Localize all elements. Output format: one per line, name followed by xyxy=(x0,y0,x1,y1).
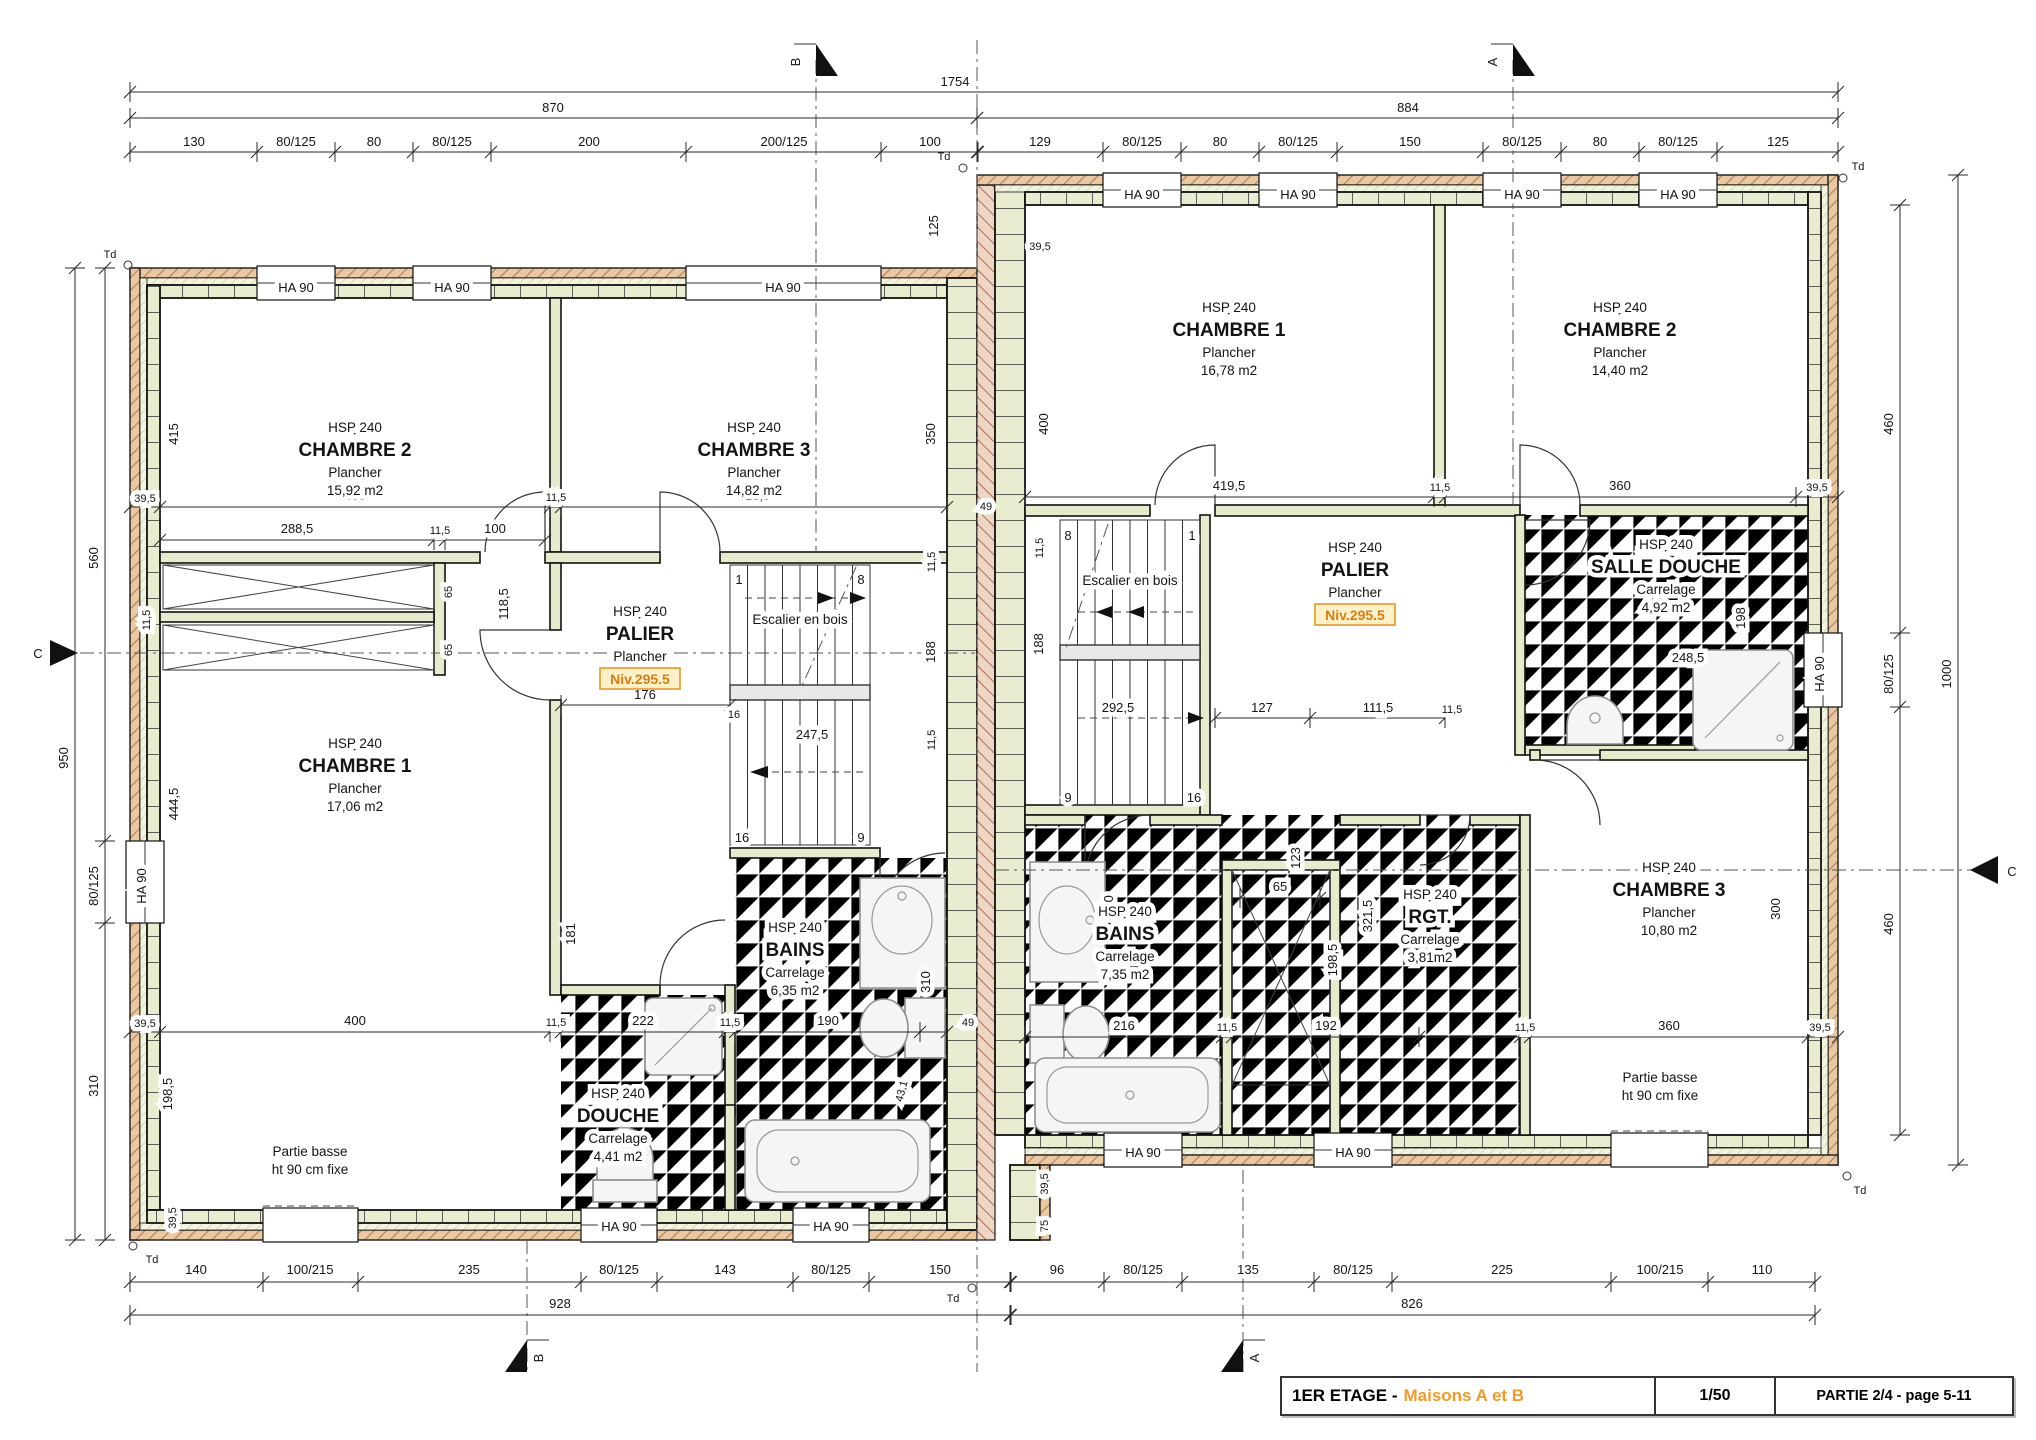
stair-number: 1 xyxy=(1188,528,1195,543)
room-hsp: HSP 240 xyxy=(1098,904,1152,919)
stair-number: 16 xyxy=(1187,790,1201,805)
dim-label: 123 xyxy=(1288,847,1303,869)
section-b-bottom: B xyxy=(531,1354,546,1363)
td-marker: Td xyxy=(938,151,951,163)
td-marker: Td xyxy=(1854,1185,1867,1197)
room-area: 7,35 m2 xyxy=(1101,967,1150,982)
dim-label: 350 xyxy=(923,423,938,445)
stairs-label: Escalier en bois xyxy=(1082,573,1178,588)
dim-label: 198,5 xyxy=(1325,944,1340,977)
room-hsp: HSP 240 xyxy=(768,920,822,935)
room-area: 3,81m2 xyxy=(1407,950,1452,965)
dim-label: 11,5 xyxy=(926,730,938,751)
dim-label: 80/125 xyxy=(1881,654,1896,694)
room-title: CHAMBRE 1 xyxy=(1173,320,1286,341)
dim-label: 216 xyxy=(1113,1018,1135,1033)
window-label: HA 90 xyxy=(1812,656,1827,691)
drawing-title: 1ER ETAGE - Maisons A et B xyxy=(1282,1378,1656,1414)
stair-number: 9 xyxy=(857,830,864,845)
dim-label: 928 xyxy=(549,1296,571,1311)
room-hsp: HSP 240 xyxy=(1593,300,1647,315)
dim-label: 826 xyxy=(1401,1296,1423,1311)
section-a-top: A xyxy=(1485,57,1500,66)
dim-label: 80 xyxy=(1213,134,1227,149)
window-label: HA 90 xyxy=(434,280,469,295)
dim-label: 1754 xyxy=(941,74,970,89)
dim-label: 444,5 xyxy=(166,788,181,821)
dim-label: 190 xyxy=(817,1013,839,1028)
room-title: BAINS xyxy=(1095,924,1154,945)
room-area: 15,92 m2 xyxy=(327,483,383,498)
dim-label: 49 xyxy=(962,1017,974,1029)
dim-label: 150 xyxy=(929,1262,951,1277)
section-b-top: B xyxy=(788,58,803,67)
dim-label: 11,5 xyxy=(1430,482,1451,494)
dim-label: 39,5 xyxy=(167,1207,179,1228)
dim-label: 288,5 xyxy=(281,521,314,536)
dim-label: 143 xyxy=(714,1262,736,1277)
dim-label: 292,5 xyxy=(1102,700,1135,715)
section-c-right: C xyxy=(2007,864,2016,879)
dim-label: 321,5 xyxy=(1360,900,1375,933)
dim-label: 125 xyxy=(1767,134,1789,149)
stairs-label: Escalier en bois xyxy=(752,612,848,627)
room-sub: Plancher xyxy=(328,465,382,480)
dim-label: 460 xyxy=(1881,913,1896,935)
room-hsp: HSP 240 xyxy=(1403,887,1457,902)
dim-label: 300 xyxy=(1768,898,1783,920)
dim-label: 11,5 xyxy=(926,552,938,573)
dim-label: 65 xyxy=(443,644,455,656)
dim-label: 248,5 xyxy=(1672,650,1705,665)
drawing-scale: 1/50 xyxy=(1656,1378,1776,1414)
room-area: 14,40 m2 xyxy=(1592,363,1648,378)
td-marker: Td xyxy=(146,1254,159,1266)
room-hsp: HSP 240 xyxy=(328,736,382,751)
dim-label: 125 xyxy=(926,215,941,237)
room-sub: Carrelage xyxy=(765,965,824,980)
dim-label: 100 xyxy=(919,134,941,149)
dim-label: 235 xyxy=(458,1262,480,1277)
room-sub: Plancher xyxy=(727,465,781,480)
window-label: HA 90 xyxy=(134,868,149,903)
section-a-bottom: A xyxy=(1247,1353,1262,1362)
dim-label: 200/125 xyxy=(761,134,808,149)
td-marker: Td xyxy=(947,1293,960,1305)
dim-label: 49 xyxy=(980,501,992,513)
room-sub: Carrelage xyxy=(1636,582,1695,597)
note-partie-basse: ht 90 cm fixe xyxy=(1622,1088,1699,1103)
dim-label: 11,5 xyxy=(1442,704,1463,716)
dim-label: 11,5 xyxy=(1217,1022,1238,1034)
room-title: BAINS xyxy=(765,940,824,961)
dim-label: 400 xyxy=(344,1013,366,1028)
stair-number: 8 xyxy=(857,572,864,587)
dim-label: 80/125 xyxy=(1122,134,1162,149)
window-label: HA 90 xyxy=(1504,187,1539,202)
dim-label: 460 xyxy=(1881,413,1896,435)
dim-label: 39,5 xyxy=(1029,241,1050,253)
dim-label: 11,5 xyxy=(430,525,451,537)
dim-label: 1000 xyxy=(1939,660,1954,689)
room-sub: Plancher xyxy=(613,649,667,664)
room-hsp: HSP 240 xyxy=(591,1086,645,1101)
dim-label: 80/125 xyxy=(432,134,472,149)
level-badge: Niv.295.5 xyxy=(610,671,670,687)
note-partie-basse: Partie basse xyxy=(272,1144,347,1159)
window-label: HA 90 xyxy=(1125,1145,1160,1160)
room-hsp: HSP 240 xyxy=(727,420,781,435)
room-hsp: HSP 240 xyxy=(1642,860,1696,875)
dim-label: 80/125 xyxy=(811,1262,851,1277)
dim-label: 39,5 xyxy=(1806,482,1827,494)
dim-label: 129 xyxy=(1029,134,1051,149)
dim-label: 135 xyxy=(1237,1262,1259,1277)
dim-label: 140 xyxy=(185,1262,207,1277)
dim-label: 80/125 xyxy=(1278,134,1318,149)
room-title: PALIER xyxy=(1321,560,1390,581)
dim-label: 188 xyxy=(1031,633,1046,655)
dim-label: 198,5 xyxy=(160,1078,175,1111)
room-sub: Plancher xyxy=(1202,345,1256,360)
stair-number: 1 xyxy=(735,572,742,587)
note-partie-basse: ht 90 cm fixe xyxy=(272,1162,349,1177)
td-marker: Td xyxy=(104,249,117,261)
window-label: HA 90 xyxy=(1660,187,1695,202)
title-block: 1ER ETAGE - Maisons A et B 1/50 PARTIE 2… xyxy=(1280,1376,2014,1416)
floorplan-sheet: B B A A C C Td Td Td Td Td Td xyxy=(0,0,2036,1440)
dim-label: 80/125 xyxy=(1333,1262,1373,1277)
bathtub-left xyxy=(745,1120,930,1202)
dim-label: 80 xyxy=(367,134,381,149)
stair-number: 16 xyxy=(735,830,749,845)
room-title: RGT. xyxy=(1408,907,1451,928)
dim-label: 111,5 xyxy=(1363,700,1394,715)
dim-label: 118,5 xyxy=(496,588,511,620)
dim-label: 419,5 xyxy=(1213,478,1246,493)
window-label: HA 90 xyxy=(765,280,800,295)
room-title: SALLE DOUCHE xyxy=(1591,557,1741,578)
room-title: CHAMBRE 2 xyxy=(299,440,412,461)
room-area: 4,41 m2 xyxy=(594,1149,643,1164)
dim-label: 11,5 xyxy=(1034,538,1046,559)
dim-label: 80/125 xyxy=(86,866,101,906)
dim-label: 65 xyxy=(1273,879,1287,894)
room-title: CHAMBRE 2 xyxy=(1564,320,1677,341)
section-c-left: C xyxy=(33,646,42,661)
window-label: HA 90 xyxy=(1124,187,1159,202)
bathtub-right xyxy=(1035,1058,1220,1132)
title-floor: 1ER ETAGE - xyxy=(1292,1386,1397,1406)
dim-label: 80/125 xyxy=(1123,1262,1163,1277)
stairs-right xyxy=(1060,520,1204,805)
dim-label: 39,5 xyxy=(134,493,155,505)
dim-label: 96 xyxy=(1050,1262,1064,1277)
room-title: CHAMBRE 3 xyxy=(1613,880,1726,901)
room-sub: Plancher xyxy=(1593,345,1647,360)
window-label: HA 90 xyxy=(1280,187,1315,202)
dim-label: 11,5 xyxy=(546,492,567,504)
dim-label: 11,5 xyxy=(1515,1022,1536,1034)
dim-label: 360 xyxy=(1609,478,1631,493)
dim-label: 80/125 xyxy=(1502,134,1542,149)
wc-right-bains xyxy=(1030,1005,1064,1063)
stair-number: 9 xyxy=(1064,790,1071,805)
room-sub: Carrelage xyxy=(588,1131,647,1146)
dim-label: 188 xyxy=(923,641,938,663)
dim-label: 150 xyxy=(1399,134,1421,149)
room-title: CHAMBRE 1 xyxy=(299,756,412,777)
title-houses: Maisons A et B xyxy=(1403,1386,1524,1406)
room-area: 14,82 m2 xyxy=(726,483,782,498)
dim-label: 100/215 xyxy=(1637,1262,1684,1277)
dim-label: 39,5 xyxy=(134,1018,155,1030)
note-partie-basse: Partie basse xyxy=(1622,1070,1697,1085)
room-hsp: HSP 240 xyxy=(613,604,667,619)
wc-left-bains xyxy=(905,998,945,1058)
dim-label: 247,5 xyxy=(796,727,829,742)
dim-label: 11,5 xyxy=(546,1017,567,1029)
dim-label: 400 xyxy=(1036,413,1051,435)
room-sub: Carrelage xyxy=(1400,932,1459,947)
dim-label: 39,5 xyxy=(1809,1022,1830,1034)
dim-label: 100 xyxy=(484,521,506,536)
room-title: CHAMBRE 3 xyxy=(698,440,811,461)
room-hsp: HSP 240 xyxy=(1328,540,1382,555)
dim-label: 310 xyxy=(918,971,933,993)
dim-label: 65 xyxy=(443,586,455,598)
room-area: 17,06 m2 xyxy=(327,799,383,814)
room-hsp: HSP 240 xyxy=(1639,537,1693,552)
dim-label: 225 xyxy=(1491,1262,1513,1277)
level-badge: Niv.295.5 xyxy=(1325,607,1385,623)
dim-label: 16 xyxy=(728,709,740,721)
dim-label: 39,5 xyxy=(1039,1173,1051,1194)
room-area: 4,92 m2 xyxy=(1642,600,1691,615)
window-label: HA 90 xyxy=(1335,1145,1370,1160)
floorplan-drawing: B B A A C C Td Td Td Td Td Td xyxy=(0,0,2036,1440)
room-area: 10,80 m2 xyxy=(1641,923,1697,938)
window-label: HA 90 xyxy=(278,280,313,295)
dim-label: 222 xyxy=(632,1013,654,1028)
dim-label: 198 xyxy=(1733,607,1748,629)
dim-label: 870 xyxy=(542,100,564,115)
drawing-part: PARTIE 2/4 - page 5-11 xyxy=(1776,1378,2012,1414)
dim-label: 100/215 xyxy=(287,1262,334,1277)
room-area: 6,35 m2 xyxy=(771,983,820,998)
td-marker: Td xyxy=(1852,161,1865,173)
window-label: HA 90 xyxy=(601,1219,636,1234)
dim-label: 80/125 xyxy=(599,1262,639,1277)
dim-label: 127 xyxy=(1251,700,1273,715)
room-area: 16,78 m2 xyxy=(1201,363,1257,378)
window-label: HA 90 xyxy=(813,1219,848,1234)
dim-label: 192 xyxy=(1315,1018,1337,1033)
dim-label: 75 xyxy=(1039,1220,1051,1232)
dim-label: 310 xyxy=(86,1075,101,1097)
room-hsp: HSP 240 xyxy=(328,420,382,435)
dim-label: 110 xyxy=(1752,1262,1773,1277)
room-title: DOUCHE xyxy=(577,1106,659,1127)
dim-label: 360 xyxy=(1658,1018,1680,1033)
dim-label: 130 xyxy=(183,134,205,149)
dim-label: 415 xyxy=(166,423,181,445)
room-sub: Plancher xyxy=(1642,905,1696,920)
room-sub: Carrelage xyxy=(1095,949,1154,964)
dim-label: 11,5 xyxy=(720,1017,741,1029)
dim-label: 950 xyxy=(56,747,71,769)
stairs-left xyxy=(730,565,870,845)
dim-label: 884 xyxy=(1397,100,1419,115)
room-sub: Plancher xyxy=(328,781,382,796)
stair-number: 8 xyxy=(1064,528,1071,543)
dim-label: 200 xyxy=(578,134,600,149)
dim-label: 11,5 xyxy=(141,610,153,631)
room-title: PALIER xyxy=(606,624,675,645)
dim-label: 80/125 xyxy=(276,134,316,149)
dim-label: 80 xyxy=(1593,134,1607,149)
dim-label: 181 xyxy=(563,923,578,945)
room-sub: Plancher xyxy=(1328,585,1382,600)
dim-label: 560 xyxy=(86,547,101,569)
dim-label: 80/125 xyxy=(1658,134,1698,149)
room-hsp: HSP 240 xyxy=(1202,300,1256,315)
